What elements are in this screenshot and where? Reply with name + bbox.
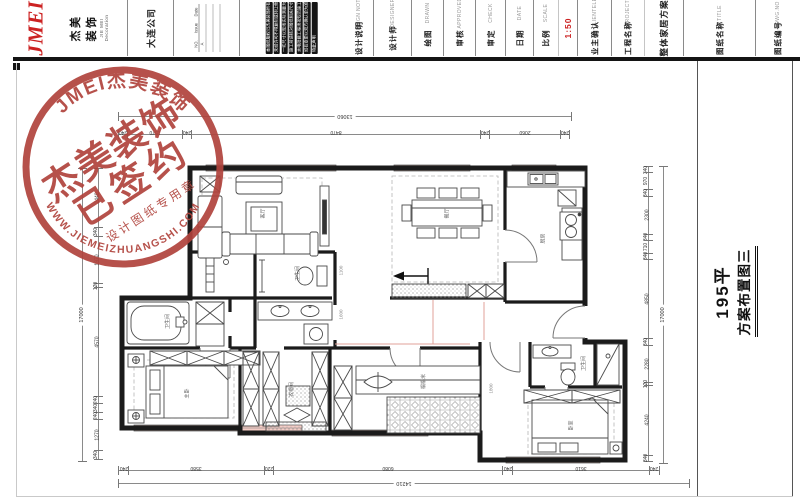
jmei-logo: JMEI (24, 0, 49, 55)
field-designer: DESIGNER设计师 (374, 0, 412, 56)
inner-walls (122, 168, 622, 433)
dim-segment-label: 240 (119, 129, 127, 135)
branch-name: 大连公司 (144, 8, 157, 48)
dim-right-total: 17000 (659, 166, 668, 464)
field-dwgno: DWG.NO图纸编号 (756, 0, 800, 56)
design-notes-label: DESIGN NOTES 设计说明 (344, 0, 374, 56)
door-swings (200, 230, 585, 410)
design-note-line: 一切尺寸以现场实际测量为准 (281, 2, 287, 54)
design-note-line: 施工前请核对图纸相关尺寸 (289, 2, 295, 54)
svg-text:设计图纸专用章: 设计图纸专用章 (103, 175, 199, 245)
stamp-arc-top: JMEI杰美装饰 (51, 69, 195, 118)
revision-table: NO.IssueDateA (174, 0, 240, 56)
design-note-line: 水电隐蔽工程须按规范施工 (296, 2, 302, 54)
company-stamp: JMEI杰美装饰 WWW.JIEMEIZHUANGSHI.COM 杰美装饰 已签… (16, 60, 230, 274)
dim-segment-label: 2060 (519, 129, 530, 135)
dim-segment-label: 220 (265, 465, 273, 471)
dim-segment-label: 2280 (645, 358, 651, 369)
field-value-scale: 1:50 (563, 17, 573, 38)
dim-segment-label: 8470 (330, 129, 341, 135)
dim-segment-label: 340 (643, 454, 649, 462)
frame-top-line (13, 57, 800, 61)
dim-right-chain: 3409703402300340710340485034022801204240… (644, 166, 653, 462)
wardrobe-x-cells (150, 176, 620, 430)
field-scale: SCALE比例1:50 (534, 0, 578, 56)
dim-segment-label: 2440 (95, 192, 101, 203)
branch-cell: 大连公司 (128, 0, 174, 56)
inner-dim-1: 1100 (338, 266, 343, 276)
title-fields: DESIGNER设计师DRAWN绘图APPROVED审核CHECK审定DATE日… (374, 0, 800, 56)
dim-segment-label: 240 (561, 129, 569, 135)
dim-segment-label: 240 (182, 129, 190, 135)
svg-text:杰美装饰: 杰美装饰 (35, 90, 188, 209)
frame-left-line (16, 63, 17, 496)
dim-segment-label: 1970 (95, 255, 101, 266)
sheet-title-area: 195平 (708, 238, 733, 346)
dim-segment-label: 6080 (382, 465, 393, 471)
dim-segment-label: 340 (93, 451, 99, 459)
window (134, 425, 302, 431)
window (506, 457, 600, 463)
dim-segment-label: 240 (504, 465, 512, 471)
field-date: DATE日期 (506, 0, 534, 56)
dim-segment-label: 4850 (645, 293, 651, 304)
dim-left-total: 17000 (78, 168, 87, 462)
frame-right-line (792, 61, 793, 497)
room-label-living: 客厅 (260, 208, 267, 218)
dim-bottom-total: 14210 (118, 479, 690, 488)
dim-segment-label: 3580 (191, 465, 202, 471)
room-label-tatami: 榻榻米 (420, 374, 427, 389)
window (394, 165, 470, 171)
inner-dim-2: 1600 (339, 309, 344, 319)
design-note-line: 未经许可不得复制或转让他人 (274, 2, 280, 54)
title-column-divider (697, 61, 698, 497)
stamp-arc-bottom: WWW.JIEMEIZHUANGSHI.COM (43, 201, 203, 256)
dim-segment-label: 710 (643, 243, 649, 251)
room-label-bath1: 卫生间 (294, 266, 301, 281)
dim-bottom-chain: 240358022060802403610240 (118, 466, 660, 475)
room-label-bath3: 卫生间 (580, 356, 587, 371)
windows (134, 165, 600, 463)
design-note-line: 如有变更以双方确认单为准 (304, 2, 310, 54)
entry-opening (581, 306, 589, 338)
dim-segment-label: 3610 (576, 465, 587, 471)
room-label-closet: 衣帽间 (288, 382, 295, 397)
dim-segment-label: 1270 (95, 429, 101, 440)
outer-walls (122, 168, 625, 460)
frame-bottom-line (16, 496, 793, 497)
accent-lines (335, 300, 484, 344)
company-logo-names: 杰美装饰 JIE MEI Decoration (67, 9, 109, 48)
dim-segment-label: 240 (650, 465, 658, 471)
entry-arrow (393, 268, 428, 284)
dim-segment-label: 970 (643, 177, 649, 185)
window (512, 165, 556, 171)
design-notes: 本图纸版权归杰美装饰所有未经许可不得复制或转让他人一切尺寸以现场实际测量为准施工… (240, 0, 344, 56)
design-note-line: 本图纸版权归杰美装饰所有 (266, 2, 272, 54)
field-project: PROJECT工程名称整体家居方案 (612, 0, 684, 56)
dim-segment-label: 340 (93, 228, 99, 236)
field-title: TITLE图纸名称 (684, 0, 756, 56)
room-label-bath2: 卫生间 (164, 314, 171, 329)
window (206, 165, 336, 171)
window (332, 430, 428, 436)
field-drawn: DRAWN绘图 (412, 0, 444, 56)
ceiling-outlines (134, 176, 614, 454)
room-label-kitchen: 厨房 (540, 233, 547, 243)
field-value-project: 整体家居方案 (658, 0, 670, 57)
field-approved: APPROVED审核 (444, 0, 476, 56)
ceiling-dashed-outline (392, 176, 498, 282)
sheet-title-name: 方案布置图三 (733, 247, 758, 338)
inner-dim-3: 1800 (489, 383, 494, 393)
furniture (127, 171, 622, 454)
dim-top-total: 13060 (118, 112, 572, 121)
drawing-sheet: JMEI 杰美装饰 JIE MEI Decoration 大连公司 NO.Iss… (0, 0, 800, 500)
design-note-line: 特此声明 (312, 2, 318, 54)
field-check: CHECK审定 (476, 0, 506, 56)
dim-segment-label: 4570 (95, 337, 101, 348)
room-label-master: 主卧 (184, 388, 191, 398)
dim-segment-label: 4240 (645, 415, 651, 426)
stamp-ring (26, 70, 220, 264)
dim-top-chain: 240157024084702402060240 (118, 130, 570, 139)
dim-segment-label: 2300 (645, 210, 651, 221)
floor-plan-svg (0, 0, 800, 500)
logo-cell: JMEI 杰美装饰 JIE MEI Decoration (0, 0, 128, 56)
dim-segment-label: 240 (481, 129, 489, 135)
room-label-bedroom: 卧室 (568, 420, 575, 430)
title-block: JMEI 杰美装饰 JIE MEI Decoration 大连公司 NO.Iss… (0, 0, 800, 56)
dim-segment-label: 1570 (149, 129, 160, 135)
design-notes-label-cn: 设计说明 (353, 21, 364, 55)
dim-segment-label: 240 (119, 465, 127, 471)
bedroom-opening (490, 339, 520, 346)
room-label-dining: 餐厅 (444, 208, 451, 218)
logo-name-en: JIE MEI Decoration (99, 9, 109, 48)
logo-name-cn: 杰美装饰 (67, 9, 99, 48)
dim-left-chain: 2440340197012045702403402401270340 (94, 168, 103, 460)
field-clientele: CLIENTELE业主确认 (578, 0, 612, 56)
